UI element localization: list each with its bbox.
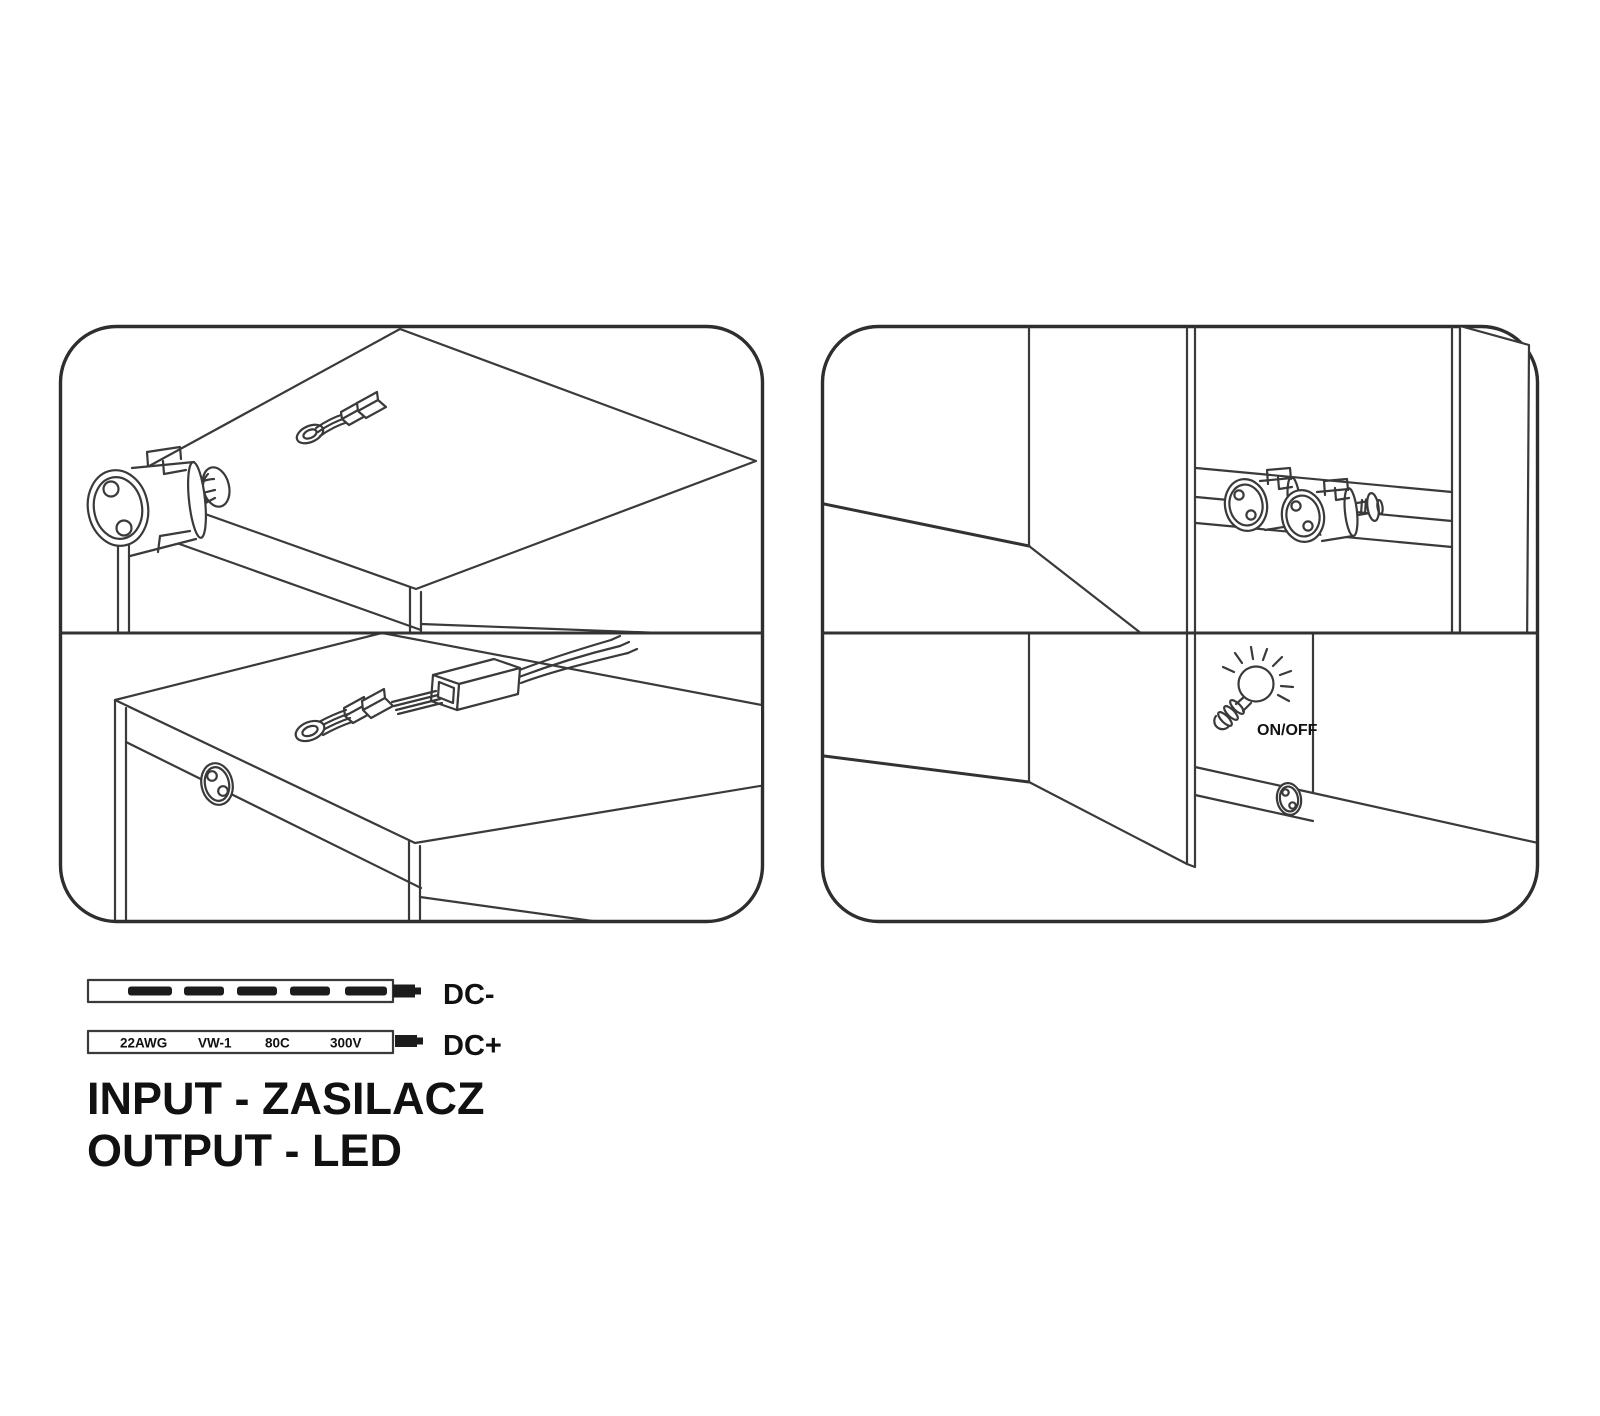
wire-marking: 80C	[265, 1036, 290, 1051]
wire-stripe-dash	[237, 987, 277, 996]
plug-pin-hole	[104, 482, 119, 497]
plug-pin-hole	[117, 521, 132, 536]
connector-pin-hole	[1246, 510, 1255, 519]
wire-end-terminal	[393, 985, 415, 998]
panel-cabinet-interior: ON/OFF	[822, 326, 1538, 922]
wire-stripe-dash	[184, 987, 224, 996]
instruction-sheet: ON/OFF DC- 22AWG VW-1 80C 300V	[0, 0, 1600, 1416]
right-door-face	[1460, 326, 1529, 679]
wire-end-terminal-tip	[417, 1038, 423, 1045]
wire-stripe-dashes	[128, 987, 387, 996]
wire-stripe-dash	[128, 987, 172, 996]
wire-stripe-dash	[345, 987, 387, 996]
wire-dc-minus: DC-	[88, 979, 495, 1011]
dc-plus-label: DC+	[443, 1030, 502, 1062]
diagram-canvas: ON/OFF DC- 22AWG VW-1 80C 300V	[0, 0, 1600, 1416]
wire-spec-diagram: DC- 22AWG VW-1 80C 300V DC+ INPUT - ZASI…	[87, 979, 502, 1176]
dc-minus-label: DC-	[443, 979, 495, 1011]
panel-cabinet-exterior	[60, 327, 772, 923]
connector-pin-hole	[1234, 490, 1243, 499]
wire-marking: VW-1	[198, 1036, 232, 1051]
panel-frame	[823, 327, 1538, 922]
wire-stripe-dash	[290, 987, 330, 996]
wire-marking: 300V	[330, 1036, 362, 1051]
on-off-label: ON/OFF	[1257, 722, 1318, 739]
wire-end-terminal-tip	[415, 988, 421, 995]
wire-end-terminal	[395, 1035, 417, 1047]
connector-pin-hole	[1303, 521, 1312, 530]
connector-pin-hole	[1291, 501, 1300, 510]
wire-marking: 22AWG	[120, 1036, 167, 1051]
wire-dc-plus: 22AWG VW-1 80C 300V DC+	[88, 1030, 502, 1062]
caption-input: INPUT - ZASILACZ	[87, 1073, 484, 1124]
caption-output: OUTPUT - LED	[87, 1125, 402, 1176]
